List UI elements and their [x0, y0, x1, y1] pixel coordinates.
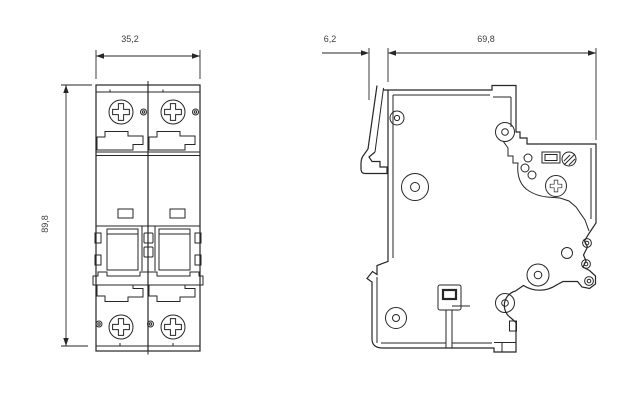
front-width-dimension: 35,2: [96, 34, 200, 79]
terminal-outline: [149, 132, 195, 151]
mcb-dimensional-drawing: 35,2 89,8: [0, 0, 640, 406]
side-rail-offset-dimension: 6,2: [322, 34, 388, 100]
terminal-outline: [97, 285, 143, 302]
phillips-screw-icon: [109, 315, 133, 339]
label-window: [118, 209, 133, 218]
pin-hole: [562, 248, 573, 259]
phillips-screw-icon: [161, 315, 185, 339]
din-clip: [361, 86, 387, 174]
rivet-icon: [527, 264, 549, 286]
terminal-detail-cluster: [521, 152, 576, 197]
terminal-outline: [149, 285, 195, 302]
rivet-icon: [402, 174, 429, 201]
arrow-left-icon: [388, 50, 396, 55]
arrow-right-icon: [588, 50, 596, 55]
small-screw-icon: [141, 109, 147, 115]
side-rail-offset-dimension-label: 6,2: [324, 34, 337, 44]
phillips-screw-icon: [546, 176, 567, 197]
rivet-icon: [496, 123, 515, 142]
toggle-opening: [107, 229, 138, 270]
side-profile-outline: [367, 86, 596, 353]
terminal-outline: [97, 132, 143, 151]
hatched-screw-icon: [562, 152, 576, 166]
wall-lines: [377, 95, 591, 352]
technical-drawing-canvas: 35,2 89,8: [0, 0, 640, 406]
side-view: 6,2 69,8: [322, 34, 596, 352]
toggle-opening: [159, 229, 190, 270]
phillips-screw-icon: [161, 100, 185, 124]
arrow-up-icon: [63, 85, 68, 93]
label-window: [170, 209, 185, 218]
arrow-down-icon: [63, 338, 68, 346]
arrow-right-icon: [192, 53, 200, 58]
rivet-icon: [386, 308, 407, 329]
rivet-icon: [390, 111, 404, 125]
clip-rivet-icon: [585, 277, 594, 286]
arrow-right-icon: [361, 50, 369, 55]
mounting-tab: [438, 285, 470, 348]
small-screw-icon: [193, 109, 199, 115]
arrow-left-icon: [96, 53, 104, 58]
phillips-screw-icon: [109, 100, 133, 124]
front-view: 35,2 89,8: [40, 34, 203, 355]
small-screw-icon: [96, 321, 102, 327]
front-height-dimension: 89,8: [40, 85, 92, 346]
front-height-dimension-label: 89,8: [40, 215, 50, 233]
slider-bar: [446, 310, 452, 348]
side-depth-dimension-label: 69,8: [477, 34, 495, 44]
front-width-dimension-label: 35,2: [121, 34, 139, 44]
